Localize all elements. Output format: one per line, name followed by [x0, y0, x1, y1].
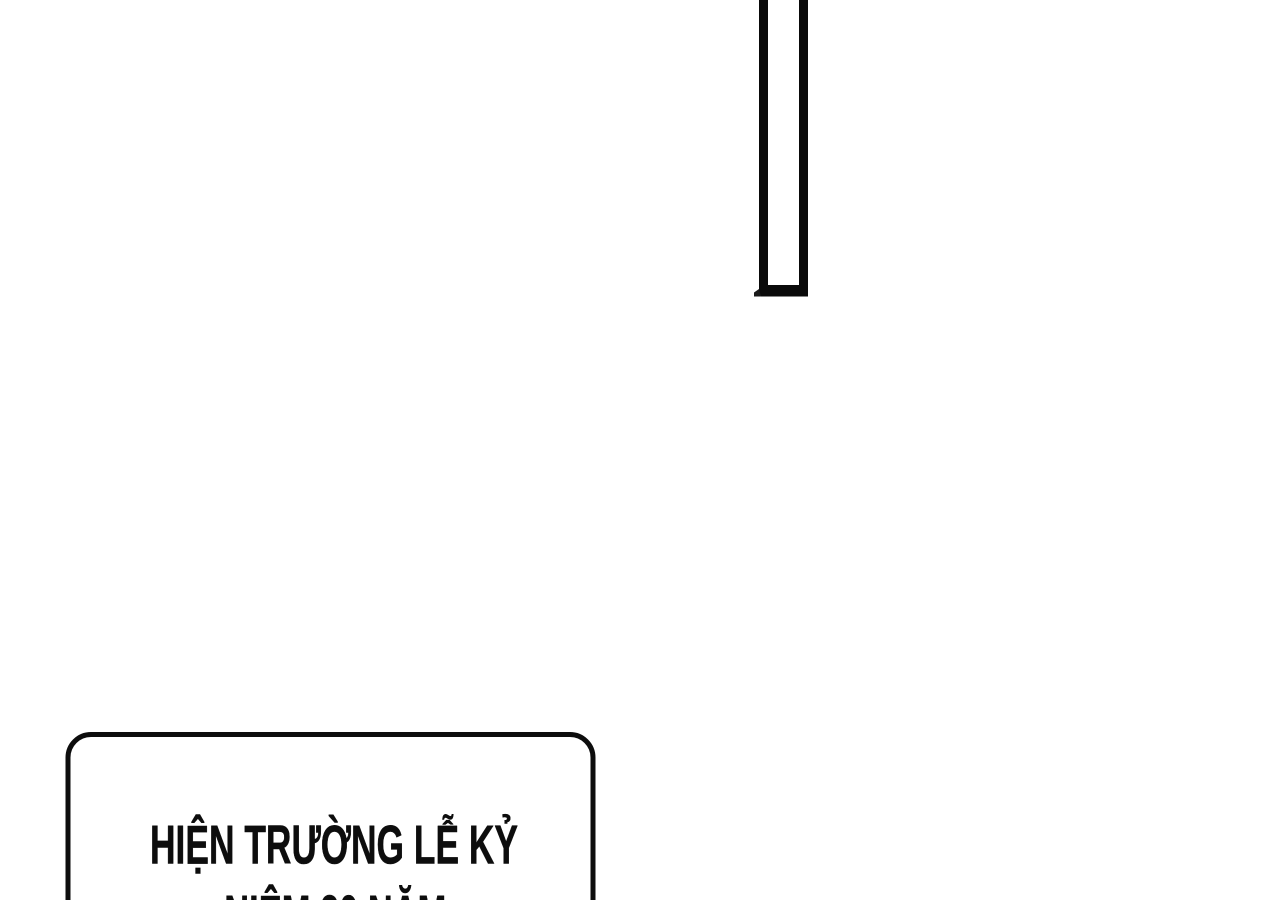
svg-text:HIỆN TRƯỜNG LỄ KỶ: HIỆN TRƯỜNG LỄ KỶ	[150, 815, 518, 876]
svg-text:NIỆM 20 NĂM: NIỆM 20 NĂM	[224, 885, 446, 900]
